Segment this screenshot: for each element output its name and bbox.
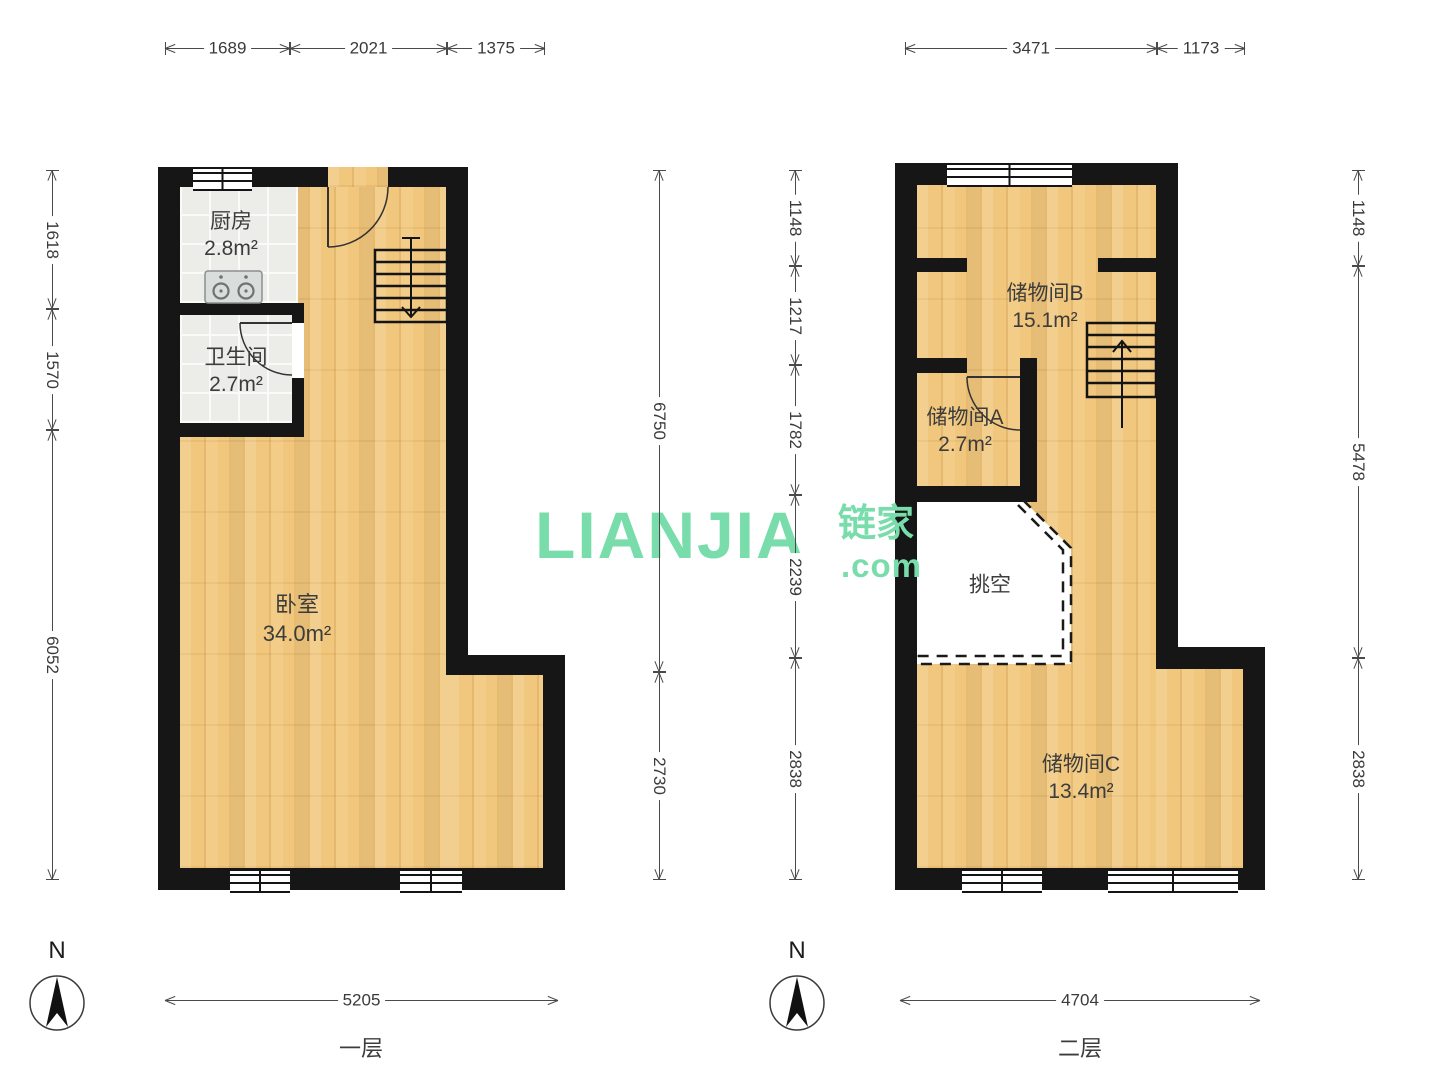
dim-f1-right-0: 6750 [650, 170, 668, 672]
bathroom-label: 卫生间2.7m² [205, 344, 268, 398]
dim-f2-bottom-0: 4704 [900, 991, 1260, 1009]
dim-f1-top-2: 1375 [447, 39, 545, 57]
lianjia-watermark-cn: 链家 [838, 505, 914, 543]
lianjia-watermark-com: .com [841, 549, 922, 582]
compass-icon [770, 976, 824, 1030]
dim-f2-left-0: 1148 [786, 170, 804, 266]
dim-f2-left-1: 1217 [786, 266, 804, 365]
dim-f2-left-2: 1782 [786, 365, 804, 495]
lianjia-watermark-logo: LIANJIA [535, 502, 806, 568]
dim-f2-right-0: 1148 [1349, 170, 1367, 266]
floor1-name: 一层 [339, 1031, 383, 1063]
stove-icon [205, 271, 262, 303]
dim-f1-top-1: 2021 [290, 39, 447, 57]
dim-f2-right-2: 2838 [1349, 658, 1367, 880]
dim-f1-top-0: 1689 [165, 39, 290, 57]
storage-a-label: 储物间A2.7m² [926, 404, 1003, 458]
compass-north-label: N [48, 937, 65, 965]
bedroom-label: 卧室34.0m² [263, 590, 331, 648]
storage-b-label: 储物间B15.1m² [1006, 280, 1083, 334]
kitchen-label: 厨房2.8m² [204, 208, 258, 262]
compass-north-label: N [788, 937, 805, 965]
dim-f2-top-0: 3471 [905, 39, 1157, 57]
dim-f2-right-1: 5478 [1349, 266, 1367, 658]
storage-c-label: 储物间C13.4m² [1042, 751, 1120, 805]
dim-f2-top-1: 1173 [1157, 39, 1245, 57]
dim-f2-left-4: 2838 [786, 658, 804, 880]
dim-f1-bottom-0: 5205 [165, 991, 558, 1009]
entry-door [328, 187, 388, 247]
floorplan-page: 厨房2.8m² 卫生间2.7m² 卧室34.0m² 储物间B15.1m² [0, 0, 1440, 1080]
dim-f2-left-3: 2239 [786, 495, 804, 658]
dim-f1-left-0: 1618 [43, 170, 61, 309]
void-label: 挑空 [969, 572, 1011, 599]
compass-icon [30, 976, 84, 1030]
floor2-name: 二层 [1058, 1031, 1102, 1063]
dim-f1-left-2: 6052 [43, 430, 61, 880]
stairs-down [375, 238, 447, 322]
dim-f1-left-1: 1570 [43, 309, 61, 430]
dim-f1-right-1: 2730 [650, 672, 668, 880]
stairs-up [1087, 323, 1156, 428]
